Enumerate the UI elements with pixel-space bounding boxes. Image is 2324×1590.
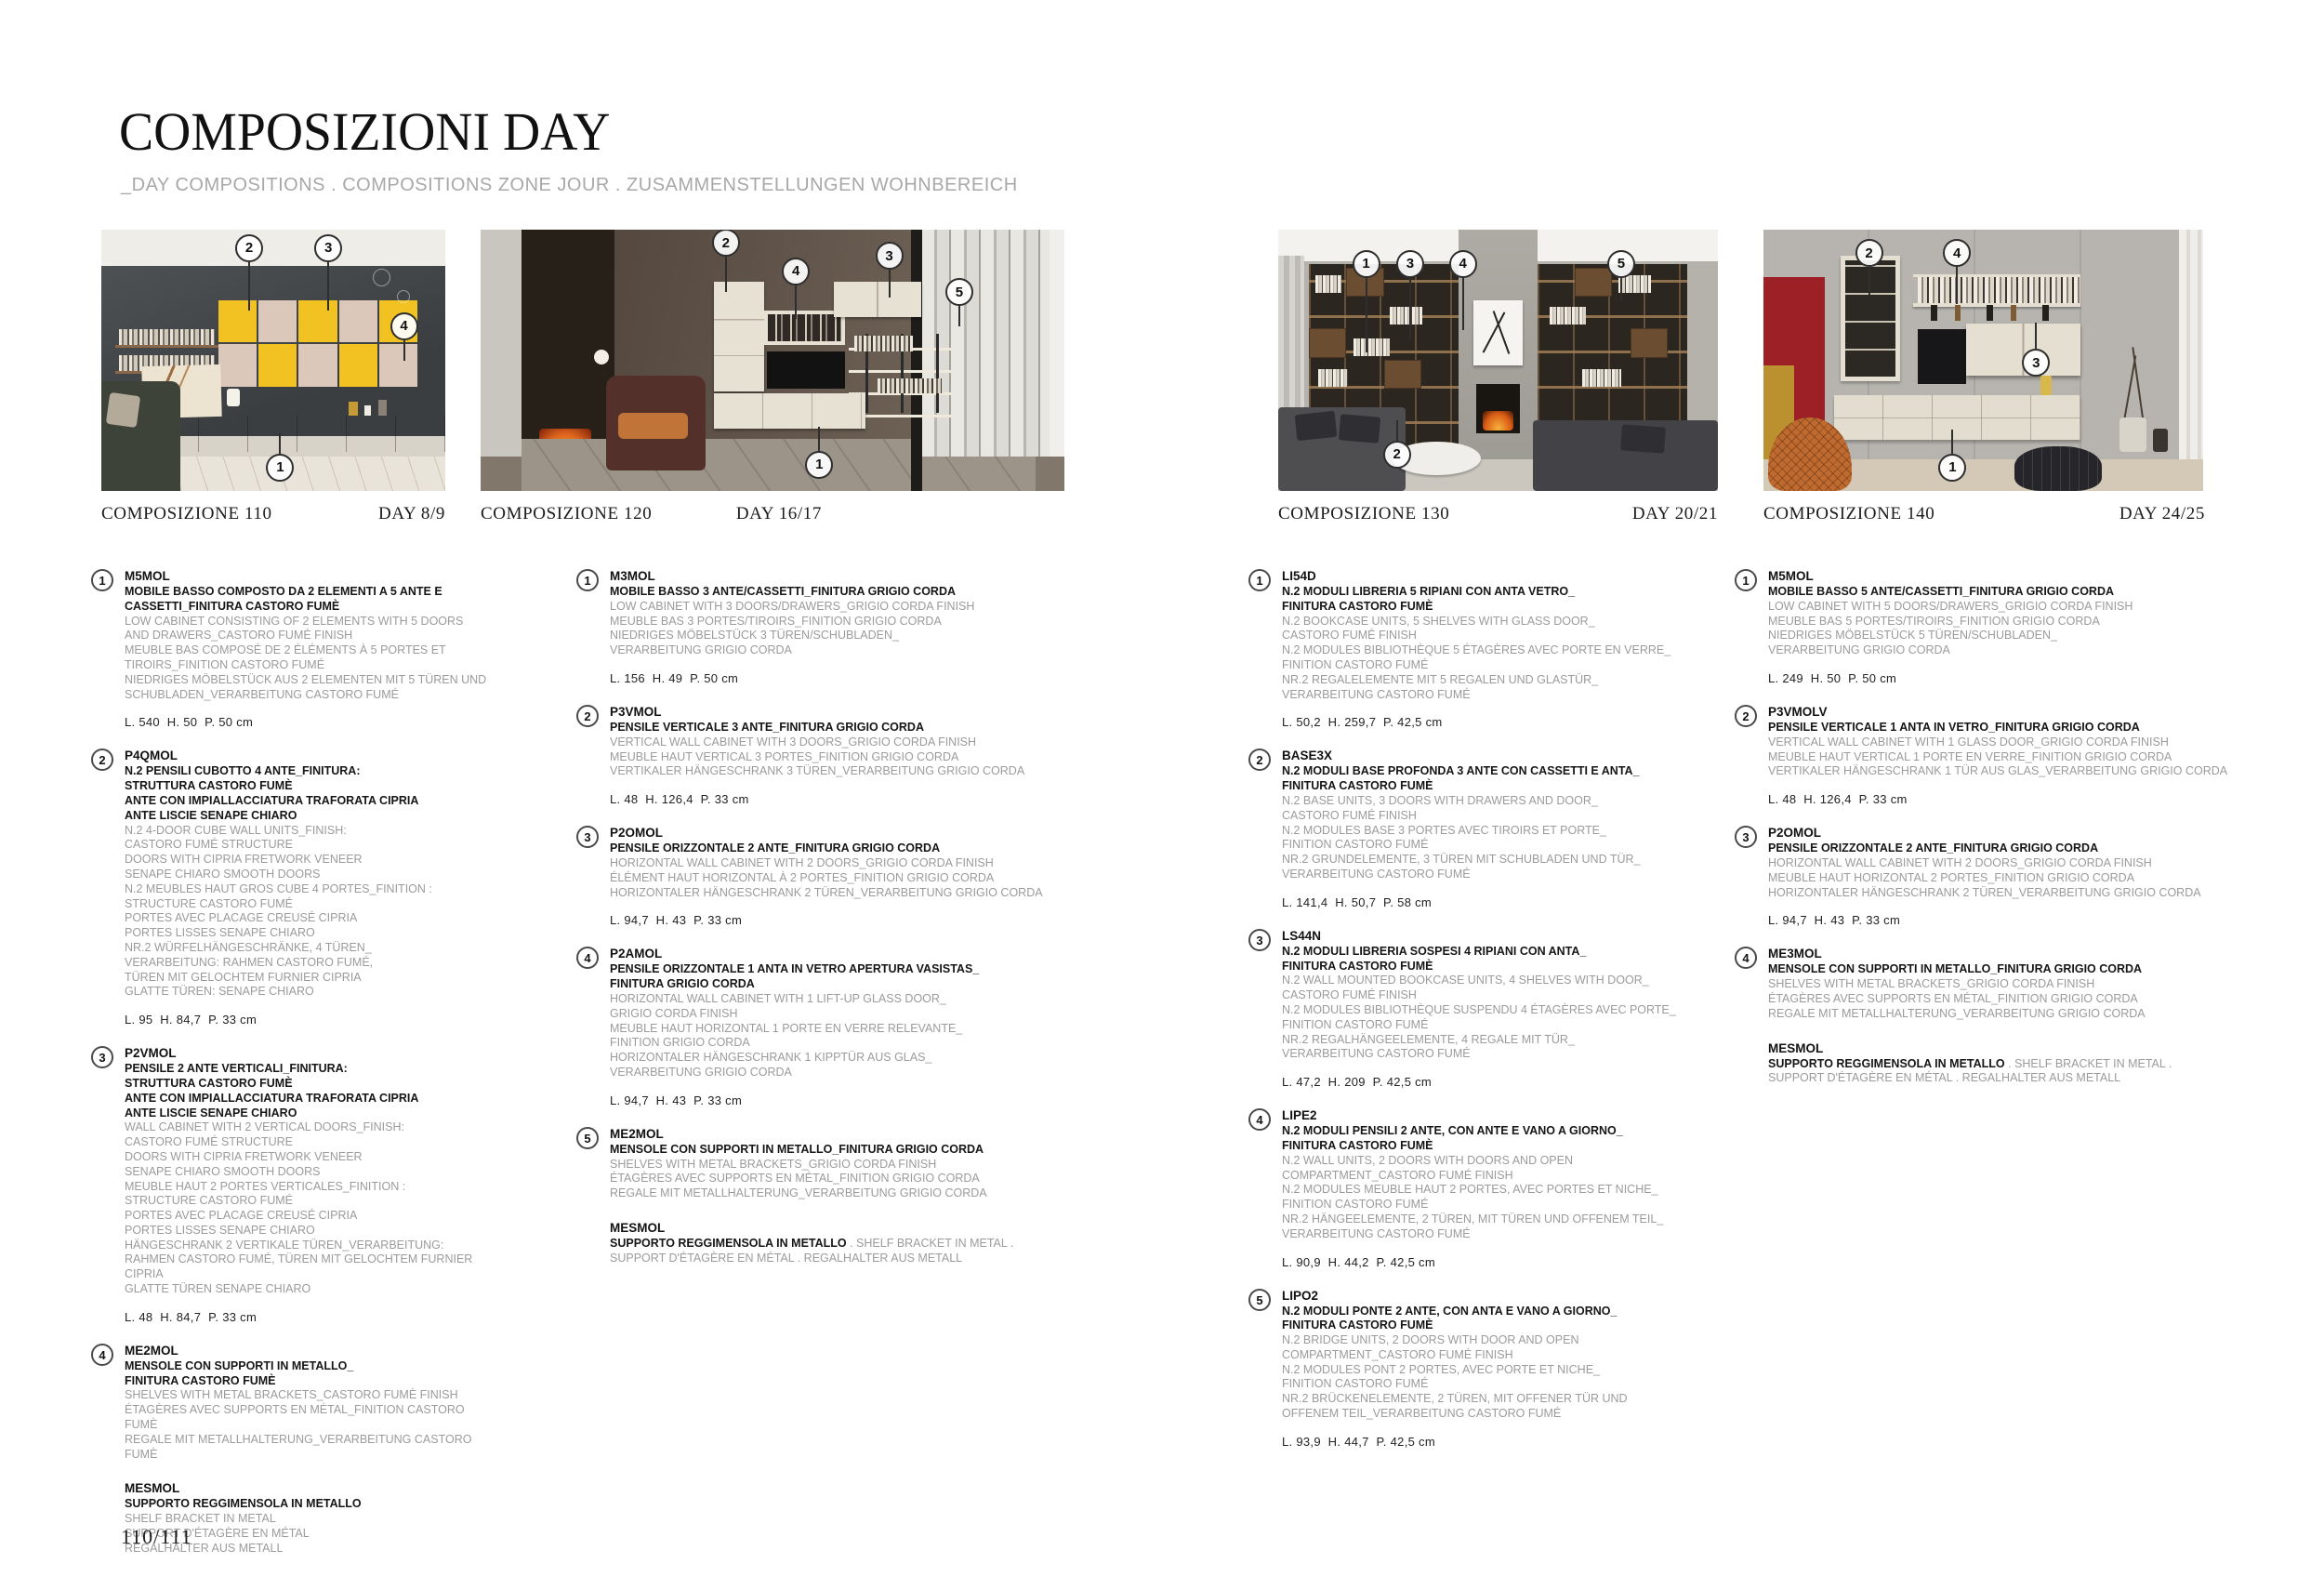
product-translations: SHELVES WITH METAL BRACKETS_CASTORO FUMÈ… <box>125 1388 500 1462</box>
callout-line <box>2035 323 2037 349</box>
cushion <box>106 392 141 428</box>
callout-line <box>1951 430 1953 454</box>
callout-line <box>795 285 797 319</box>
photo-callout-number: 3 <box>314 234 342 262</box>
photo-callout-number: 3 <box>1396 250 1424 278</box>
caption-composizione-130: COMPOSIZIONE 130 DAY 20/21 <box>1278 504 1718 524</box>
low-cabinet <box>1834 395 2080 440</box>
product-title-it: N.2 MODULI LIBRERIA SOSPESI 4 RIPIANI CO… <box>1282 945 1727 974</box>
books-shelf-top <box>119 329 216 345</box>
product-item: 5 LIPO2 N.2 MODULI PONTE 2 ANTE, CON ANT… <box>1248 1289 1727 1449</box>
callout-line <box>958 306 960 326</box>
callout-line <box>1366 278 1367 352</box>
product-item: 3 P2OMOL PENSILE ORIZZONTALE 2 ANTE_FINI… <box>1735 826 2265 927</box>
vase <box>349 402 358 415</box>
photo-callout-number: 3 <box>876 242 904 270</box>
item-number-badge: 3 <box>576 826 599 848</box>
product-translations: N.2 BASE UNITS, 3 DOORS WITH DRAWERS AND… <box>1282 794 1727 882</box>
photo-callout-number: 1 <box>266 454 294 482</box>
vase <box>364 405 371 415</box>
product-dimensions: L. 94,7 H. 43 P. 33 cm <box>610 913 1050 927</box>
product-title-it: MENSOLE CON SUPPORTI IN METALLO_FINITURA… <box>1768 962 2265 977</box>
product-translations: N.2 WALL MOUNTED BOOKCASE UNITS, 4 SHELV… <box>1282 974 1727 1062</box>
callout-line <box>248 262 250 311</box>
item-number-badge: 4 <box>1735 947 1757 969</box>
item-number-badge: 4 <box>91 1344 113 1366</box>
product-item: 4 LIPE2 N.2 MODULI PENSILI 2 ANTE, CON A… <box>1248 1108 1727 1268</box>
side-wall <box>481 230 522 491</box>
product-item: 3 P2OMOL PENSILE ORIZZONTALE 2 ANTE_FINI… <box>576 826 1050 927</box>
product-item: 3 P2VMOL PENSILE 2 ANTE VERTICALI_FINITU… <box>91 1046 500 1324</box>
vase <box>2153 429 2169 452</box>
product-dimensions: L. 48 H. 84,7 P. 33 cm <box>125 1310 500 1324</box>
product-item: 2 BASE3X N.2 MODULI BASE PROFONDA 3 ANTE… <box>1248 749 1727 908</box>
product-item: 1 LI54D N.2 MODULI LIBRERIA 5 RIPIANI CO… <box>1248 569 1727 729</box>
product-title-translation-inline: . SHELF BRACKET IN METAL . <box>847 1237 1014 1250</box>
photo-callout-number: 2 <box>1855 239 1883 267</box>
product-title-it: MENSOLE CON SUPPORTI IN METALLO_FINITURA… <box>610 1143 1050 1158</box>
product-dimensions: L. 90,9 H. 44,2 P. 42,5 cm <box>1282 1255 1727 1269</box>
product-code: LIPO2 <box>1282 1289 1727 1304</box>
product-dimensions: L. 141,4 H. 50,7 P. 58 cm <box>1282 895 1727 909</box>
photo-callout-number: 1 <box>1353 250 1380 278</box>
shelf-bar <box>115 345 218 348</box>
photo-composizione-130: 1 3 4 5 2 <box>1278 230 1718 491</box>
product-code: MESMOL <box>610 1221 1050 1236</box>
items-column-110: 1 M5MOL MOBILE BASSO COMPOSTO DA 2 ELEME… <box>91 569 500 1576</box>
product-title-it: N.2 MODULI PONTE 2 ANTE, CON ANTA E VANO… <box>1282 1305 1727 1334</box>
composition-name: COMPOSIZIONE 120 <box>481 504 652 524</box>
item-number-badge: 1 <box>1248 569 1271 591</box>
callout-line <box>1868 267 1870 295</box>
photo-composizione-120: 2 4 3 5 1 <box>481 230 1064 491</box>
item-number-badge: 2 <box>91 749 113 771</box>
product-dimensions: L. 48 H. 126,4 P. 33 cm <box>1768 792 2265 806</box>
product-item: 2 P3VMOL PENSILE VERTICALE 3 ANTE_FINITU… <box>576 705 1050 806</box>
product-title-it: N.2 MODULI LIBRERIA 5 RIPIANI CON ANTA V… <box>1282 585 1727 615</box>
product-dimensions: L. 95 H. 84,7 P. 33 cm <box>125 1013 500 1027</box>
low-wood-cabinet <box>150 416 445 452</box>
callout-line <box>725 257 727 292</box>
page-title: COMPOSIZIONI DAY <box>119 100 611 163</box>
callout-line <box>1956 267 1958 304</box>
item-number-badge: 4 <box>576 947 599 969</box>
composition-day: DAY 8/9 <box>378 504 445 524</box>
books-row <box>1918 277 2080 303</box>
table-lamp <box>227 389 240 406</box>
product-translations: SUPPORT D'ÉTAGÈRE EN MÉTAL . REGALHALTER… <box>610 1252 1050 1266</box>
item-number-badge: 3 <box>91 1046 113 1068</box>
product-dimensions: L. 50,2 H. 259,7 P. 42,5 cm <box>1282 715 1727 729</box>
product-title-it: N.2 PENSILI CUBOTTO 4 ANTE_FINITURA: STR… <box>125 764 500 823</box>
product-item: 2 P3VMOLV PENSILE VERTICALE 1 ANTA IN VE… <box>1735 705 2265 806</box>
composition-name: COMPOSIZIONE 130 <box>1278 504 1449 524</box>
callout-line <box>1620 278 1622 302</box>
product-dimensions: L. 47,2 H. 209 P. 42,5 cm <box>1282 1075 1727 1089</box>
product-title-it: SUPPORTO REGGIMENSOLA IN METALLO . SHELF… <box>1768 1057 2265 1072</box>
item-number-badge: 4 <box>1248 1108 1271 1131</box>
product-item: 2 P4QMOL N.2 PENSILI CUBOTTO 4 ANTE_FINI… <box>91 749 500 1027</box>
table-lamp <box>2040 376 2052 395</box>
product-code: MESMOL <box>125 1481 500 1496</box>
product-title-it: SUPPORTO REGGIMENSOLA IN METALLO . SHELF… <box>610 1237 1050 1252</box>
photo-callout-number: 4 <box>390 312 418 340</box>
page-subtitle: _DAY COMPOSITIONS . COMPOSITIONS ZONE JO… <box>121 175 1018 196</box>
photo-callout-number: 2 <box>1383 441 1411 469</box>
product-title-it: PENSILE ORIZZONTALE 2 ANTE_FINITURA GRIG… <box>1768 841 2265 856</box>
product-translations: N.2 BRIDGE UNITS, 2 DOORS WITH DOOR AND … <box>1282 1333 1727 1422</box>
product-code: LI54D <box>1282 569 1727 584</box>
books <box>878 378 942 392</box>
callout-line <box>1409 278 1411 339</box>
product-code: ME2MOL <box>125 1344 500 1358</box>
product-item: 4 ME3MOL MENSOLE CON SUPPORTI IN METALLO… <box>1735 947 2265 1021</box>
items-column-120: 1 M3MOL MOBILE BASSO 3 ANTE/CASSETTI_FIN… <box>576 569 1050 1286</box>
product-code: M5MOL <box>1768 569 2265 584</box>
product-code: ME2MOL <box>610 1127 1050 1142</box>
product-translations: WALL CABINET WITH 2 VERTICAL DOORS_FINIS… <box>125 1120 500 1297</box>
page-number: 110/111 <box>121 1525 192 1549</box>
product-code: P2OMOL <box>610 826 1050 841</box>
product-code: MESMOL <box>1768 1041 2265 1056</box>
product-translations: HORIZONTAL WALL CABINET WITH 1 LIFT-UP G… <box>610 992 1050 1080</box>
composition-day: DAY 24/25 <box>2119 504 2205 524</box>
tall-wall-cabinet <box>714 282 763 391</box>
product-item: 4 ME2MOL MENSOLE CON SUPPORTI IN METALLO… <box>91 1344 500 1463</box>
upper-wall-cabinet <box>834 282 921 317</box>
armchair-cushion <box>618 413 688 439</box>
composition-day: DAY 16/17 <box>736 504 822 524</box>
product-translations: HORIZONTAL WALL CABINET WITH 2 DOORS_GRI… <box>610 856 1050 900</box>
product-title-translation-inline: . SHELF BRACKET IN METAL . <box>2005 1057 2172 1070</box>
photo-callout-number: 2 <box>712 230 740 257</box>
callout-line <box>1462 278 1464 330</box>
photo-callout-number: 2 <box>235 234 263 262</box>
product-dimensions: L. 156 H. 49 P. 50 cm <box>610 671 1050 685</box>
product-code: P2VMOL <box>125 1046 500 1061</box>
photo-callout-number: 1 <box>805 451 833 479</box>
composition-name: COMPOSIZIONE 110 <box>101 504 272 524</box>
product-item: MESMOL SUPPORTO REGGIMENSOLA IN METALLO … <box>576 1221 1050 1266</box>
product-item: 3 LS44N N.2 MODULI LIBRERIA SOSPESI 4 RI… <box>1248 929 1727 1089</box>
callout-line <box>889 270 891 298</box>
product-code: P3VMOLV <box>1768 705 2265 720</box>
curtain <box>2179 230 2203 459</box>
product-code: P4QMOL <box>125 749 500 763</box>
item-number-badge: 1 <box>91 569 113 591</box>
tv <box>767 351 846 390</box>
product-translations: VERTICAL WALL CABINET WITH 3 DOORS_GRIGI… <box>610 735 1050 779</box>
product-item: 1 M5MOL MOBILE BASSO COMPOSTO DA 2 ELEME… <box>91 569 500 729</box>
items-column-140: 1 M5MOL MOBILE BASSO 5 ANTE/CASSETTI_FIN… <box>1735 569 2265 1106</box>
product-code: LIPE2 <box>1282 1108 1727 1123</box>
product-code: LS44N <box>1282 929 1727 944</box>
item-number-badge: 1 <box>576 569 599 591</box>
shelf-bracket <box>936 334 939 412</box>
product-translations: SHELVES WITH METAL BRACKETS_GRIGIO CORDA… <box>610 1158 1050 1201</box>
pillow <box>1620 424 1666 453</box>
photo-callout-number: 4 <box>782 258 810 285</box>
photo-composizione-110: 2 3 4 1 <box>101 230 445 491</box>
product-title-it: PENSILE VERTICALE 1 ANTA IN VETRO_FINITU… <box>1768 721 2265 735</box>
product-code: P2OMOL <box>1768 826 2265 841</box>
pillow <box>1295 411 1337 441</box>
composition-day: DAY 20/21 <box>1632 504 1718 524</box>
product-title-it: MOBILE BASSO 3 ANTE/CASSETTI_FINITURA GR… <box>610 585 1050 600</box>
items-column-130: 1 LI54D N.2 MODULI LIBRERIA 5 RIPIANI CO… <box>1248 569 1727 1468</box>
product-code: ME3MOL <box>1768 947 2265 961</box>
item-number-badge: 5 <box>1248 1289 1271 1311</box>
low-cabinet <box>714 393 865 429</box>
fire <box>1483 411 1513 431</box>
product-item: 4 P2AMOL PENSILE ORIZZONTALE 1 ANTA IN V… <box>576 947 1050 1106</box>
product-dimensions: L. 540 H. 50 P. 50 cm <box>125 715 500 729</box>
caption-composizione-120: COMPOSIZIONE 120 DAY 16/17 <box>481 504 822 524</box>
product-code: P3VMOL <box>610 705 1050 720</box>
cube-wall-units <box>218 300 418 387</box>
product-item: 5 ME2MOL MENSOLE CON SUPPORTI IN METALLO… <box>576 1127 1050 1201</box>
product-code: P2AMOL <box>610 947 1050 961</box>
product-code: M3MOL <box>610 569 1050 584</box>
product-translations: N.2 4-DOOR CUBE WALL UNITS_FINISH: CASTO… <box>125 824 500 1000</box>
product-title-it: PENSILE ORIZZONTALE 2 ANTE_FINITURA GRIG… <box>610 841 1050 856</box>
item-number-badge: 3 <box>1248 929 1271 951</box>
product-dimensions: L. 93,9 H. 44,7 P. 42,5 cm <box>1282 1435 1727 1449</box>
pendant-lamp <box>397 290 410 303</box>
product-item: 1 M3MOL MOBILE BASSO 3 ANTE/CASSETTI_FIN… <box>576 569 1050 685</box>
pillow <box>1339 414 1380 444</box>
product-dimensions: L. 249 H. 50 P. 50 cm <box>1768 671 2265 685</box>
callout-line <box>279 433 281 454</box>
composition-name: COMPOSIZIONE 140 <box>1763 504 1934 524</box>
product-translations: N.2 WALL UNITS, 2 DOORS WITH DOORS AND O… <box>1282 1154 1727 1242</box>
callout-line <box>327 262 329 311</box>
photo-callout-number: 1 <box>1938 454 1966 482</box>
item-number-badge: 2 <box>1248 749 1271 771</box>
product-title-it: MOBILE BASSO COMPOSTO DA 2 ELEMENTI A 5 … <box>125 585 500 615</box>
product-code: BASE3X <box>1282 749 1727 763</box>
product-title-it: PENSILE ORIZZONTALE 1 ANTA IN VETRO APER… <box>610 962 1050 992</box>
tv <box>1918 329 1966 384</box>
shelf-objects <box>1931 305 2063 321</box>
product-item: 1 M5MOL MOBILE BASSO 5 ANTE/CASSETTI_FIN… <box>1735 569 2265 685</box>
item-number-badge: 2 <box>576 705 599 727</box>
product-title-it: N.2 MODULI PENSILI 2 ANTE, CON ANTE E VA… <box>1282 1124 1727 1154</box>
callout-line <box>818 427 820 451</box>
product-dimensions: L. 94,7 H. 43 P. 33 cm <box>1768 913 2265 927</box>
photo-callout-number: 4 <box>1449 250 1477 278</box>
product-dimensions: L. 48 H. 126,4 P. 33 cm <box>610 792 1050 806</box>
product-translations: LOW CABINET CONSISTING OF 2 ELEMENTS WIT… <box>125 615 500 703</box>
item-number-badge: 3 <box>1735 826 1757 848</box>
product-title-it: PENSILE 2 ANTE VERTICALI_FINITURA: STRUT… <box>125 1062 500 1120</box>
glass-door-cabinet <box>1841 256 1900 381</box>
product-title-it: MENSOLE CON SUPPORTI IN METALLO_ FINITUR… <box>125 1359 500 1389</box>
product-translations: HORIZONTAL WALL CABINET WITH 2 DOORS_GRI… <box>1768 856 2265 900</box>
artwork <box>1473 300 1522 365</box>
product-translations: N.2 BOOKCASE UNITS, 5 SHELVES WITH GLASS… <box>1282 615 1727 703</box>
caption-composizione-110: COMPOSIZIONE 110 DAY 8/9 <box>101 504 445 524</box>
product-translations: LOW CABINET WITH 5 DOORS/DRAWERS_GRIGIO … <box>1768 600 2265 658</box>
item-number-badge: 2 <box>1735 705 1757 727</box>
item-number-badge: 1 <box>1735 569 1757 591</box>
product-translations: SHELVES WITH METAL BRACKETS_GRIGIO CORDA… <box>1768 977 2265 1021</box>
product-item: MESMOL SUPPORTO REGGIMENSOLA IN METALLO … <box>1735 1041 2265 1087</box>
photo-callout-number: 5 <box>1607 250 1635 278</box>
fireplace-opening <box>1476 384 1520 433</box>
product-title-it: N.2 MODULI BASE PROFONDA 3 ANTE CON CASS… <box>1282 764 1727 794</box>
product-title-it: PENSILE VERTICALE 3 ANTE_FINITURA GRIGIO… <box>610 721 1050 735</box>
product-title-it: SUPPORTO REGGIMENSOLA IN METALLO <box>125 1497 500 1512</box>
curtain <box>1050 230 1064 457</box>
photo-composizione-140: 2 4 3 1 <box>1763 230 2203 491</box>
product-dimensions: L. 94,7 H. 43 P. 33 cm <box>610 1093 1050 1107</box>
product-translations: LOW CABINET WITH 3 DOORS/DRAWERS_GRIGIO … <box>610 600 1050 658</box>
item-number-badge: 5 <box>576 1127 599 1149</box>
books <box>854 336 913 351</box>
vase <box>2119 417 2146 452</box>
product-title-it: MOBILE BASSO 5 ANTE/CASSETTI_FINITURA GR… <box>1768 585 2265 600</box>
callout-line <box>403 340 405 361</box>
product-translations: SUPPORT D'ÉTAGÈRE EN MÉTAL . REGALHALTER… <box>1768 1071 2265 1086</box>
product-translations: VERTICAL WALL CABINET WITH 1 GLASS DOOR_… <box>1768 735 2265 779</box>
callout-line <box>1396 420 1398 441</box>
vase <box>378 400 388 416</box>
product-code: M5MOL <box>125 569 500 584</box>
ceiling <box>101 230 445 266</box>
caption-composizione-140: COMPOSIZIONE 140 DAY 24/25 <box>1763 504 2205 524</box>
knit-pouf <box>2014 446 2103 491</box>
